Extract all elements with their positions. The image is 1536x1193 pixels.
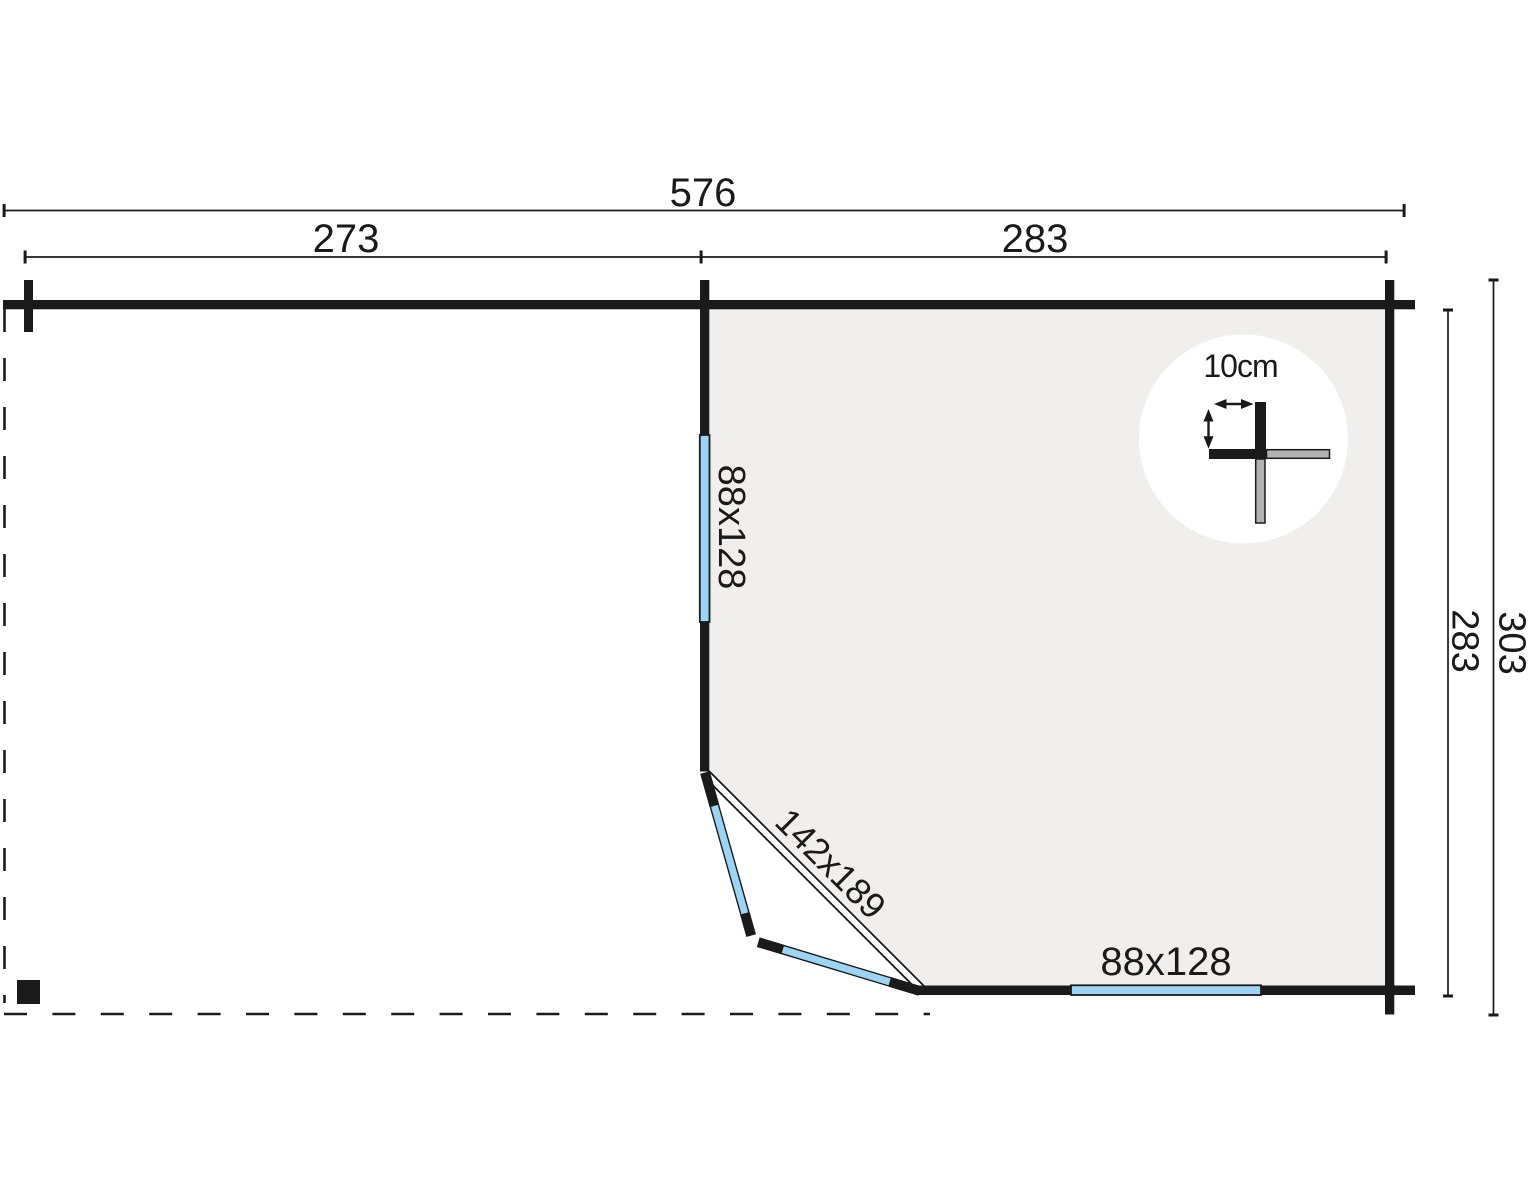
svg-text:303: 303: [1491, 611, 1533, 674]
svg-text:88x128: 88x128: [710, 465, 752, 590]
svg-text:283: 283: [1002, 217, 1069, 261]
svg-text:10cm: 10cm: [1203, 348, 1277, 384]
svg-text:273: 273: [313, 217, 380, 261]
svg-text:88x128: 88x128: [1100, 940, 1231, 984]
svg-text:283: 283: [1444, 609, 1486, 672]
svg-text:576: 576: [670, 171, 737, 215]
